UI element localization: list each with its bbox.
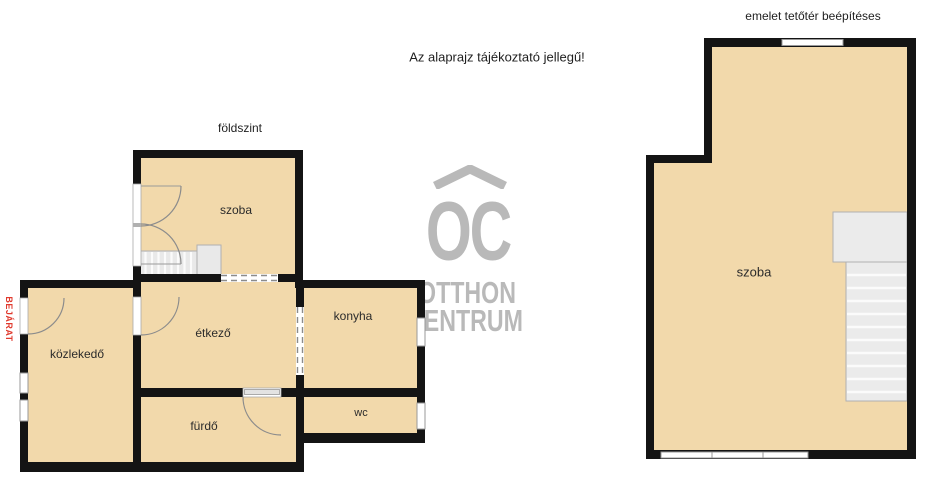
wall-segment <box>133 274 223 282</box>
room-label-kozlekedo: közlekedő <box>50 347 104 361</box>
wall-segment <box>133 280 141 297</box>
upper-floor-plan <box>646 38 916 459</box>
wall-segment <box>20 280 28 298</box>
wall-segment <box>20 280 141 288</box>
wall-segment <box>417 280 425 318</box>
door-opening <box>133 297 141 335</box>
door-opening <box>20 298 28 334</box>
wall-segment <box>133 335 141 472</box>
room-label-wc: wc <box>354 407 367 419</box>
wall-segment <box>704 38 712 163</box>
ground-floor-title: földszint <box>218 121 262 135</box>
wall-segment <box>907 38 916 459</box>
wall-segment <box>133 150 303 158</box>
room-label-szoba-upper: szoba <box>737 265 772 280</box>
wall-segment <box>20 462 304 472</box>
window-icon <box>417 318 425 346</box>
room-label-szoba-ground: szoba <box>220 203 252 217</box>
window-icon <box>782 40 843 46</box>
window-icon <box>661 452 808 458</box>
open-passage <box>221 274 278 282</box>
window-icon <box>417 403 425 429</box>
wall-segment <box>417 429 425 443</box>
floorplan-image: OC OTTHON CENTRUM <box>0 0 932 500</box>
entrance-label: BEJÁRAT <box>4 291 14 347</box>
disclaimer-text: Az alaprajz tájékoztató jellegű! <box>409 50 585 65</box>
wall-segment <box>296 433 425 443</box>
room-label-etkezo: étkező <box>195 326 230 340</box>
room-label-furdo: fürdő <box>190 419 217 433</box>
wall-segment <box>295 280 425 288</box>
wall-segment <box>296 288 304 308</box>
wall-segment <box>20 393 28 400</box>
wall-segment <box>133 150 141 186</box>
room-label-konyha: konyha <box>334 309 373 323</box>
window-icon <box>20 373 28 393</box>
door-leaf <box>245 390 280 395</box>
wall-segment <box>295 150 303 288</box>
wall-segment <box>417 388 425 403</box>
door-mullion <box>133 223 141 227</box>
wall-segment <box>646 155 654 459</box>
wall-segment <box>646 155 712 163</box>
wall-segment <box>133 388 243 397</box>
wall-segment <box>296 388 304 472</box>
floor-plans-drawing <box>0 0 932 500</box>
wall-segment <box>20 334 28 374</box>
upper-floor-title: emelet tetőtér beépítéses <box>745 9 880 23</box>
window-icon <box>20 400 28 421</box>
